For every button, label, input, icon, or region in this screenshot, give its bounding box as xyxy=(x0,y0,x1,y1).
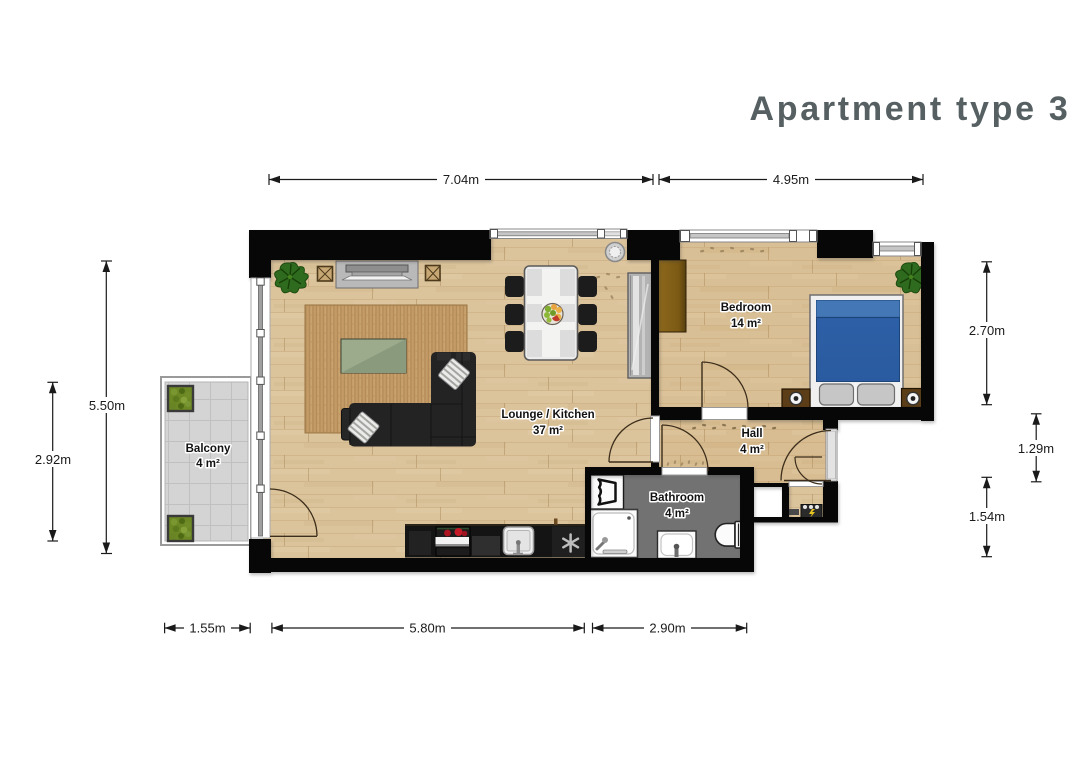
svg-text:Hall: Hall xyxy=(741,428,762,440)
svg-text:4.95m: 4.95m xyxy=(773,172,809,187)
svg-text:2.90m: 2.90m xyxy=(649,621,685,636)
svg-text:37 m²: 37 m² xyxy=(533,425,563,437)
svg-text:1.55m: 1.55m xyxy=(189,621,225,636)
svg-text:5.80m: 5.80m xyxy=(409,621,445,636)
svg-text:Lounge / Kitchen: Lounge / Kitchen xyxy=(501,409,594,421)
svg-text:2.92m: 2.92m xyxy=(35,452,71,467)
svg-text:4 m²: 4 m² xyxy=(665,508,689,520)
svg-text:14 m²: 14 m² xyxy=(731,318,761,330)
svg-text:1.54m: 1.54m xyxy=(969,509,1005,524)
svg-text:Apartment type 3: Apartment type 3 xyxy=(750,90,1071,128)
svg-text:Balcony: Balcony xyxy=(186,443,231,455)
svg-text:4 m²: 4 m² xyxy=(196,458,220,470)
svg-text:4 m²: 4 m² xyxy=(740,444,764,456)
svg-text:Bathroom: Bathroom xyxy=(650,492,704,504)
svg-text:7.04m: 7.04m xyxy=(443,172,479,187)
svg-text:1.29m: 1.29m xyxy=(1018,441,1054,456)
svg-text:2.70m: 2.70m xyxy=(969,323,1005,338)
svg-text:5.50m: 5.50m xyxy=(89,398,125,413)
svg-text:Bedroom: Bedroom xyxy=(721,302,771,314)
